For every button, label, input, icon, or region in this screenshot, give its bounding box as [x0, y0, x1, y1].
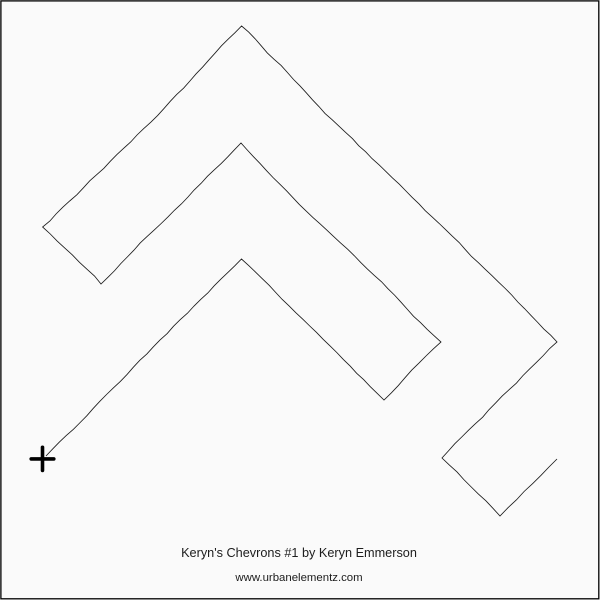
svg-text:Keryn's Chevrons #1 by Keryn E: Keryn's Chevrons #1 by Keryn Emmerson	[181, 546, 417, 560]
svg-text:www.urbanelementz.com: www.urbanelementz.com	[234, 572, 362, 584]
